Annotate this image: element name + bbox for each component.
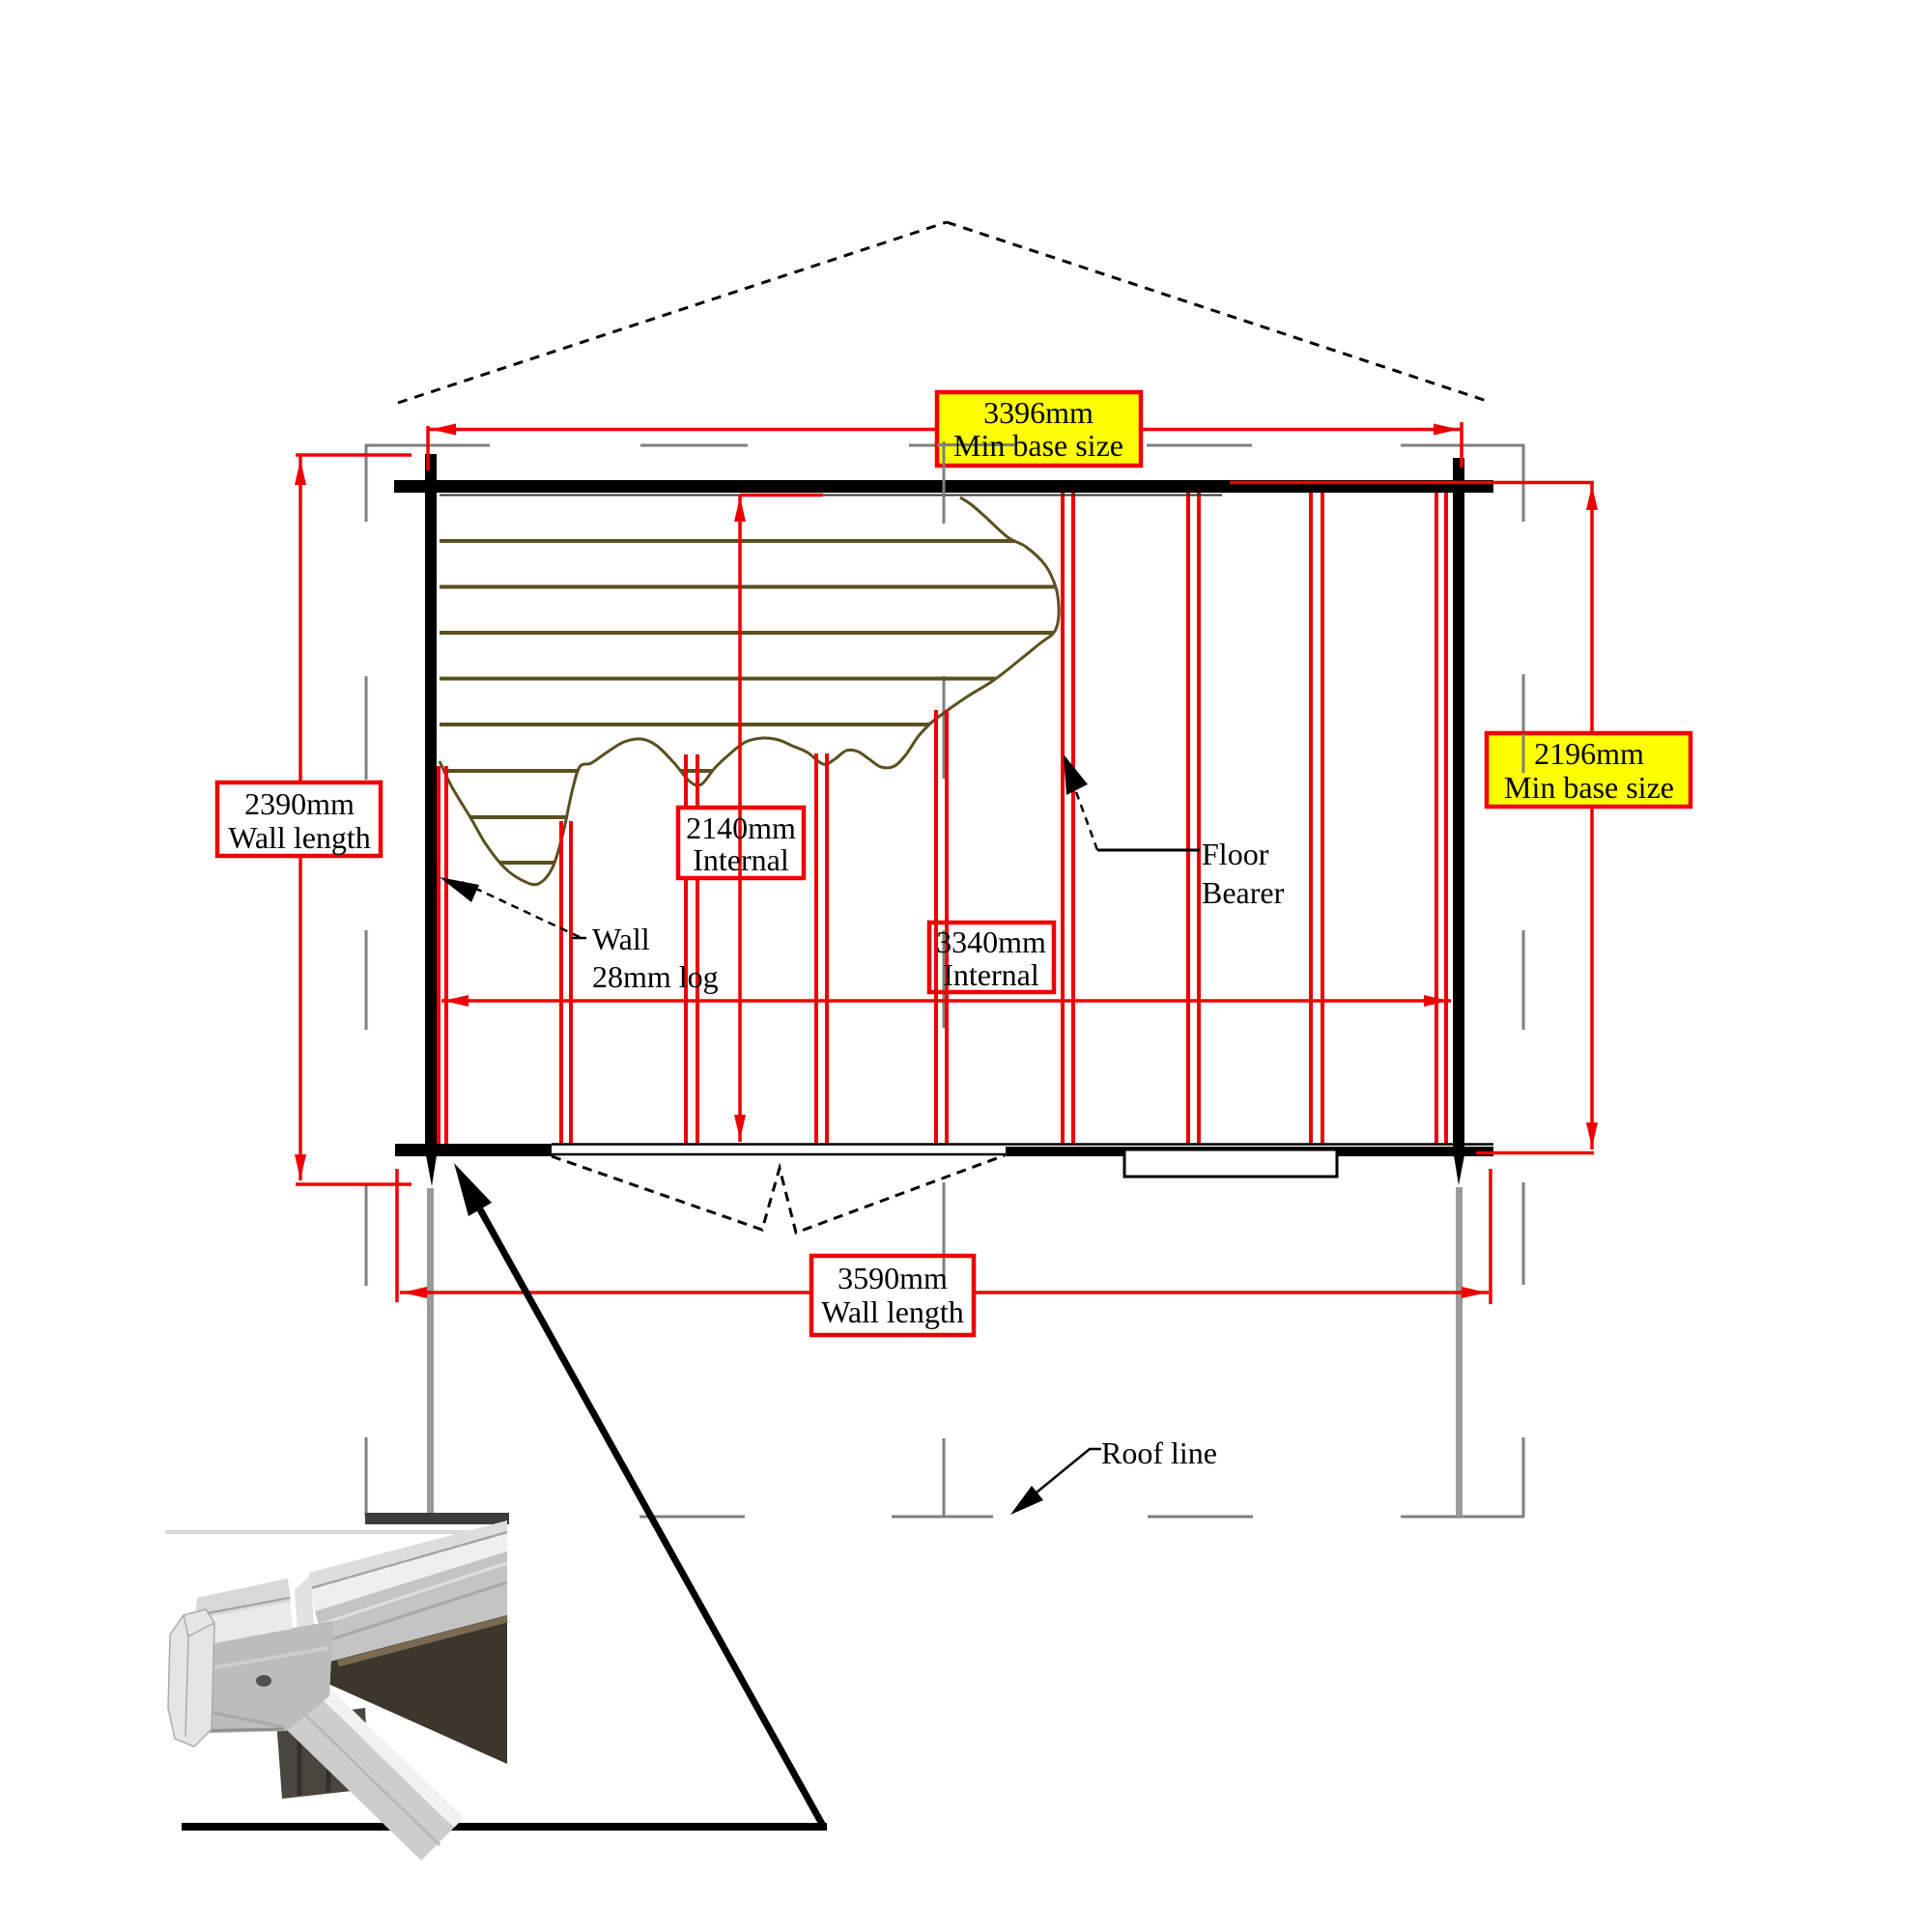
svg-text:Min base size: Min base size — [953, 428, 1123, 463]
svg-text:Internal: Internal — [693, 842, 789, 877]
svg-text:3590mm: 3590mm — [838, 1261, 948, 1295]
svg-text:Wall length: Wall length — [228, 820, 371, 855]
svg-text:Roof line: Roof line — [1101, 1435, 1217, 1470]
svg-text:3396mm: 3396mm — [983, 395, 1094, 430]
svg-text:2140mm: 2140mm — [686, 810, 796, 845]
svg-text:3340mm: 3340mm — [936, 924, 1046, 959]
svg-text:Bearer: Bearer — [1202, 875, 1285, 910]
svg-text:28mm log: 28mm log — [592, 959, 719, 994]
svg-text:Wall: Wall — [592, 922, 650, 956]
svg-text:Floor: Floor — [1202, 837, 1269, 871]
svg-text:Wall length: Wall length — [821, 1294, 964, 1329]
svg-text:Internal: Internal — [943, 957, 1039, 992]
svg-text:2390mm: 2390mm — [244, 786, 355, 821]
svg-text:2196mm: 2196mm — [1534, 736, 1644, 771]
svg-text:Min base size: Min base size — [1504, 770, 1674, 805]
